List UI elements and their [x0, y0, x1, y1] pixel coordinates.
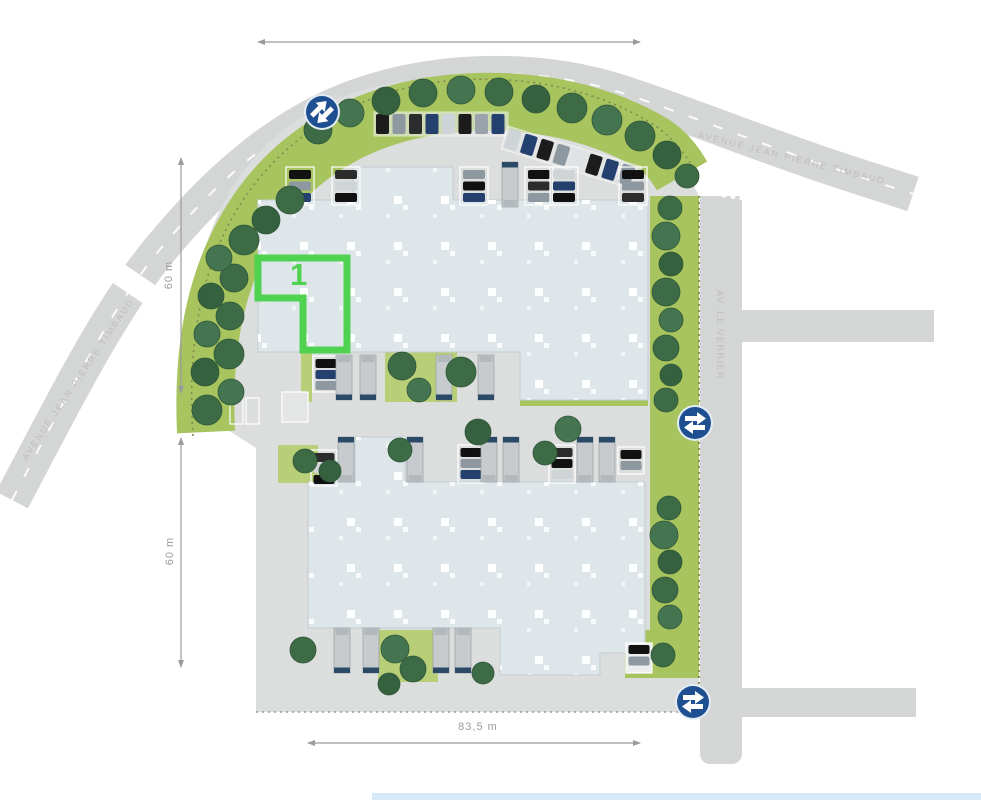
unit-1-number: 1 [290, 259, 307, 290]
side-branch-road-upper [742, 310, 934, 342]
site-plan-drawing [0, 0, 981, 800]
parking-row-top-left [374, 112, 508, 136]
av-le-verrier-road [695, 167, 934, 764]
dimension-label-60m-upper: 60 m [163, 250, 175, 300]
side-branch-road-lower [742, 688, 916, 717]
dimension-label-83-5m: 83,5 m [438, 721, 518, 733]
site-plan-image: AVENUE JEAN PIERRE TIMBAUD AVENUE JEAN P… [0, 0, 981, 800]
dimension-label-60m-lower: 60 m [164, 526, 176, 576]
two-way-traffic-sign-bottom [675, 684, 711, 720]
street-label-av-le-verrier: AV. LE VERRIER [715, 280, 725, 390]
bottom-blue-bar [372, 793, 981, 800]
two-way-traffic-sign-middle [677, 405, 713, 441]
